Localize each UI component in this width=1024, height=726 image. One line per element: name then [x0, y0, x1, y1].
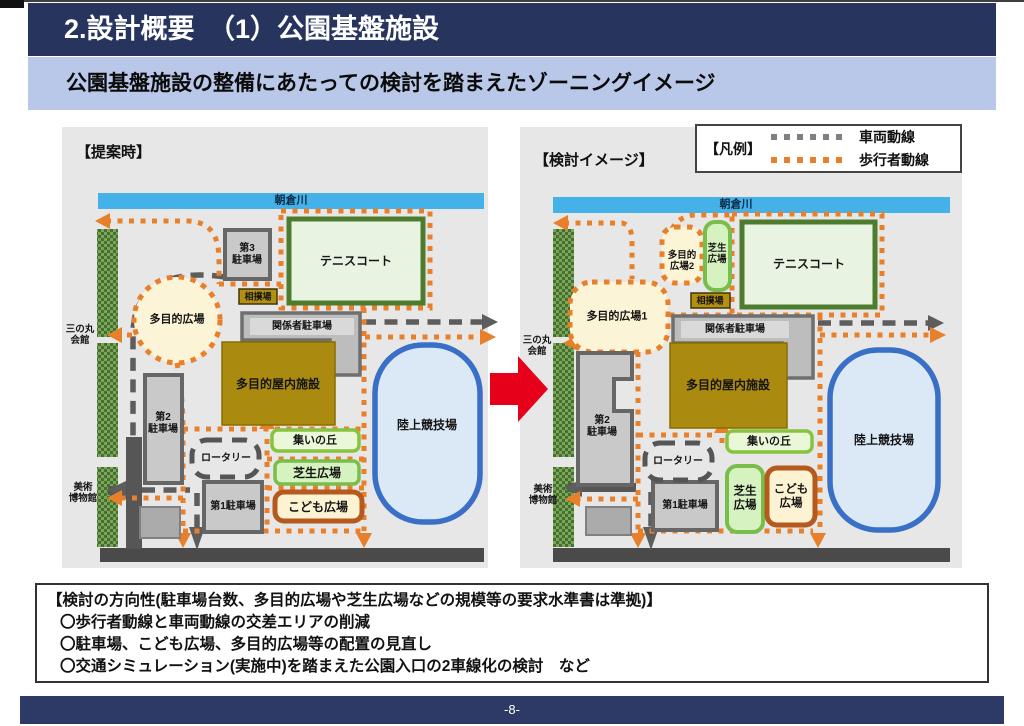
lawn-plaza-top-box: [705, 222, 730, 290]
sumo-box: [239, 289, 277, 304]
multipurpose-plaza-circle: [134, 277, 220, 363]
pedestrian-arrow-down-west: [630, 533, 646, 548]
vehicle-arrow-right-exit: [482, 314, 498, 330]
red-transition-arrow: [490, 356, 550, 422]
plaza1-blob: [570, 282, 668, 352]
parking1-box: [653, 482, 717, 530]
south-road: [100, 548, 484, 562]
rotary-dashed: [645, 443, 712, 480]
asakura-river: [98, 193, 484, 209]
gathering-hill-box: [727, 431, 812, 452]
lawn-plaza-box: [727, 466, 763, 532]
parking3-box: [225, 230, 270, 279]
staff-parking-label-strip: [681, 321, 789, 338]
vehicle-line-sample: [771, 134, 849, 140]
gathering-hill-box: [272, 430, 359, 451]
indoor-facility-box: [670, 343, 787, 428]
page-title: 2.設計概要 （1）公園基盤施設: [28, 3, 996, 56]
notes-item-1: 〇歩行者動線と車両動線の交差エリアの削減: [47, 612, 977, 634]
legend-title: 【凡例】: [705, 139, 761, 159]
notes-item-3: 〇交通シミュレーション(実施中)を踏まえた公園入口の2車線化の検討 など: [47, 656, 977, 678]
page-subtitle: 公園基盤施設の整備にあたっての検討を踏まえたゾーニングイメージ: [28, 57, 996, 110]
corner-black-mark: [0, 0, 24, 8]
tennis-court-box: [742, 222, 875, 307]
top-border-line: [0, 0, 1024, 2]
kids-plaza-box: [767, 468, 815, 525]
athletics-stadium-box: [375, 345, 480, 522]
pedestrian-arrow-down-east: [810, 533, 826, 548]
parking2-box: [145, 375, 182, 483]
tennis-court-box: [289, 219, 423, 303]
pedestrian-arrow-right-exit: [480, 329, 496, 345]
map-title-study: 【検討イメージ】: [534, 149, 654, 170]
athletics-stadium-box: [830, 350, 938, 530]
indoor-facility-box: [222, 342, 335, 425]
buildings: [140, 219, 480, 538]
map-panel-proposal: 【提案時】 朝倉川 第3 駐車場 テニスコート 相撲場 多目的広場 関係者駐車場…: [62, 127, 488, 568]
proposal-map-svg: [62, 127, 488, 568]
parking1-box: [204, 482, 262, 532]
rotary-dashed: [192, 440, 259, 477]
page-number-bar: -8-: [20, 696, 1004, 724]
legend-row-pedestrian: 歩行者動線: [771, 150, 929, 170]
pedestrian-arrow-left-top: [553, 215, 568, 231]
study-direction-notes: 【検討の方向性(駐車場台数、多目的広場や芝生広場などの規模等の要求水準書は準拠)…: [35, 583, 989, 683]
legend-box: 【凡例】 車両動線 歩行者動線: [695, 124, 962, 173]
parking2-box: [578, 353, 632, 485]
notes-item-2: 〇駐車場、こども広場、多目的広場等の配置の見直し: [47, 634, 977, 656]
sumo-box: [691, 293, 730, 308]
study-map-svg: [520, 127, 962, 568]
pedestrian-line-label: 歩行者動線: [859, 150, 929, 170]
staff-parking-label-strip: [250, 318, 354, 335]
notes-heading: 【検討の方向性(駐車場台数、多目的広場や芝生広場などの規模等の要求水準書は準拠)…: [47, 590, 977, 612]
kids-plaza-box: [275, 492, 362, 521]
utility-box: [140, 507, 180, 538]
pedestrian-line-sample: [771, 157, 849, 163]
pedestrian-arrow-right-exit: [930, 327, 946, 343]
pedestrian-arrow-left-top: [95, 213, 110, 229]
vehicle-line-label: 車両動線: [859, 127, 915, 147]
south-road: [553, 548, 950, 562]
map-panel-study: 【検討イメージ】 朝倉川 多目的 広場2 芝生 広場 テニスコート 相撲場 多目…: [520, 127, 962, 568]
pedestrian-arrow-down-east: [356, 533, 372, 548]
map-title-proposal: 【提案時】: [76, 141, 151, 162]
plaza2-blob: [662, 227, 702, 283]
legend-row-vehicle: 車両動線: [771, 127, 929, 147]
asakura-river: [553, 197, 950, 213]
utility-box: [586, 507, 631, 535]
lawn-plaza-box: [275, 461, 359, 484]
